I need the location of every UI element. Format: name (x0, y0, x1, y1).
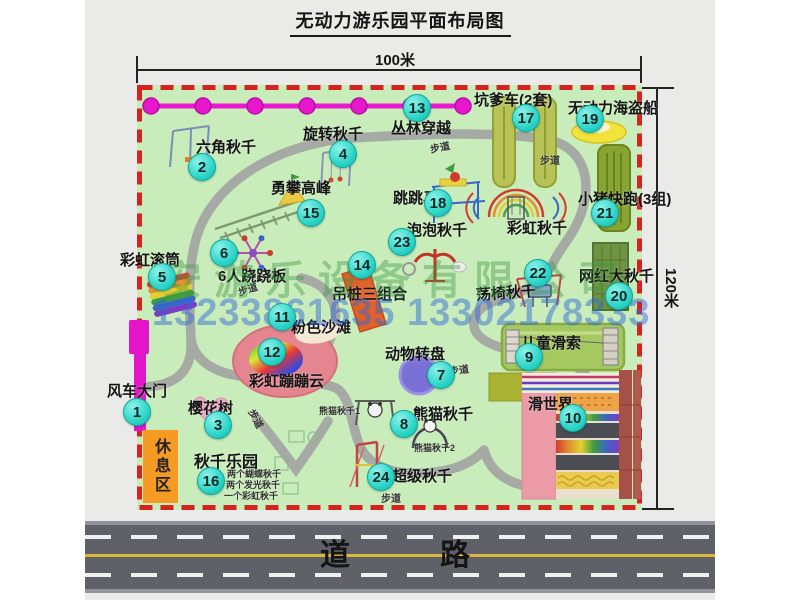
map-label: 彩虹蹦蹦云 (249, 370, 324, 391)
watermark-phone: 13233861635 13302178333 (152, 292, 651, 335)
badge-16: 16 (197, 467, 225, 495)
badge-5: 5 (148, 263, 176, 291)
badge-9: 9 (515, 343, 543, 371)
badge-1: 1 (123, 398, 151, 426)
map-label: 一个彩虹秋千 (224, 489, 278, 502)
dim-top-tick-left (136, 56, 138, 83)
map-label: 彩虹秋千 (507, 217, 567, 238)
map-label: 熊猫秋千 (413, 403, 473, 424)
badge-14: 14 (348, 251, 376, 279)
screenshot-stage: 无动力游乐园平面布局图 100米 120米 (0, 0, 800, 600)
map-label: 步道 (540, 152, 560, 167)
badge-12: 12 (258, 338, 286, 366)
badge-24: 24 (367, 463, 395, 491)
dim-top-tick-right (640, 56, 642, 83)
map-label: 泡泡秋千 (407, 219, 467, 240)
windmill-gate-icon (129, 320, 149, 354)
badge-21: 21 (591, 199, 619, 227)
road-label: 道 路 (85, 525, 715, 589)
dim-right-tick-top (640, 87, 674, 89)
badge-3: 3 (204, 411, 232, 439)
badge-2: 2 (188, 153, 216, 181)
badge-10: 10 (559, 404, 587, 432)
dim-right-line (656, 88, 658, 509)
badge-23: 23 (388, 228, 416, 256)
map-label: 坑爹车(2套) (474, 89, 552, 110)
page-title-text: 无动力游乐园平面布局图 (290, 7, 511, 37)
badge-20: 20 (605, 282, 633, 310)
map-label: 熊猫秋千1 (319, 404, 360, 417)
badge-8: 8 (390, 410, 418, 438)
badge-4: 4 (329, 140, 357, 168)
dim-right-label: 120米 (660, 268, 681, 308)
badge-19: 19 (576, 105, 604, 133)
dim-top-label: 100米 (355, 49, 435, 70)
badge-7: 7 (427, 361, 455, 389)
map-label: 步道 (381, 490, 401, 505)
badge-15: 15 (297, 199, 325, 227)
road: 道 路 (85, 521, 715, 593)
page-title: 无动力游乐园平面布局图 (0, 7, 800, 37)
rest-area: 休息区 (143, 430, 178, 503)
badge-13: 13 (403, 94, 431, 122)
map-label: 熊猫秋千2 (414, 441, 455, 454)
map-label: 超级秋千 (392, 465, 452, 486)
badge-11: 11 (268, 303, 296, 331)
map-label: 勇攀高峰 (271, 177, 331, 198)
badge-17: 17 (512, 104, 540, 132)
dim-right-tick-bottom (640, 508, 674, 510)
badge-6: 6 (210, 239, 238, 267)
map-label: 旋转秋千 (303, 123, 363, 144)
badge-22: 22 (524, 259, 552, 287)
badge-18: 18 (424, 189, 452, 217)
